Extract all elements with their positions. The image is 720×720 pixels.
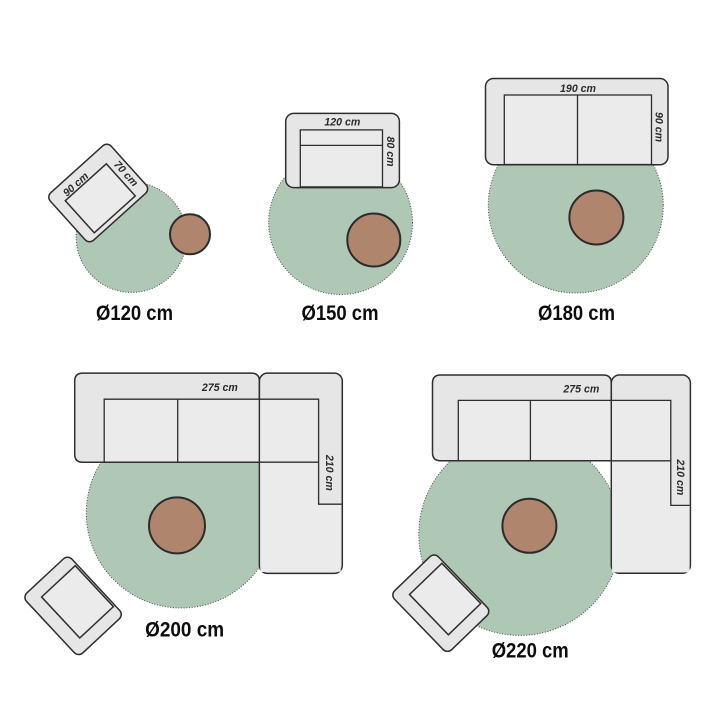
svg-text:210 cm: 210 cm: [323, 454, 335, 491]
svg-text:190 cm: 190 cm: [560, 83, 596, 95]
svg-text:210 cm: 210 cm: [674, 458, 686, 495]
svg-text:Ø200 cm: Ø200 cm: [145, 617, 224, 641]
svg-text:275 cm: 275 cm: [201, 382, 238, 394]
svg-text:275 cm: 275 cm: [562, 384, 599, 396]
svg-text:Ø150 cm: Ø150 cm: [302, 301, 379, 325]
svg-text:120 cm: 120 cm: [324, 116, 360, 128]
svg-text:Ø220 cm: Ø220 cm: [492, 638, 569, 662]
svg-text:80 cm: 80 cm: [384, 136, 396, 166]
svg-text:Ø120 cm: Ø120 cm: [96, 301, 173, 325]
svg-text:90 cm: 90 cm: [653, 112, 665, 142]
svg-text:Ø180 cm: Ø180 cm: [538, 301, 615, 325]
